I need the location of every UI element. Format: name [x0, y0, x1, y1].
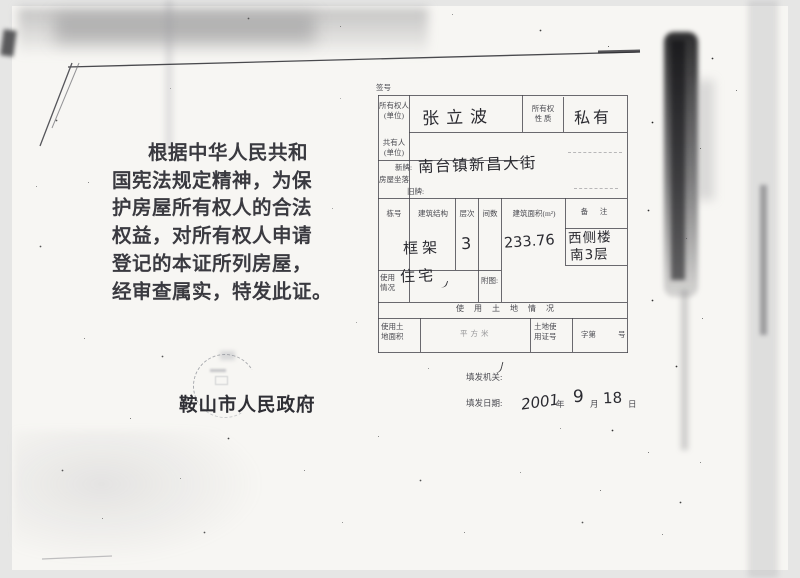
certificate-text-line: 根据中华人民共和 [112, 140, 332, 168]
usage-label-line1: 使用 [380, 273, 395, 283]
location-label: 房屋坐落 [379, 175, 409, 185]
co-owner-label-line1: 共有人 [379, 138, 409, 148]
col-remark: 备 注 [568, 207, 625, 217]
scanned-certificate-page: 根据中华人民共和 国宪法规定精神，为保 护房屋所有权人的合法 权益，对所有权人申… [0, 0, 800, 578]
address-value: 南台镇新昌大街 [418, 151, 538, 177]
property-form-table: 签号 [378, 95, 628, 353]
land-area-label-line1: 使用土 [381, 322, 404, 332]
ownership-nature-label: 所有权 性 质 [524, 104, 562, 124]
file-number-label: 签号 [376, 83, 391, 93]
col-floors: 层次 [457, 209, 477, 219]
certificate-text-line: 登记的本证所列房屋， [112, 251, 332, 279]
col-building-no: 栋号 [381, 209, 407, 219]
remark-value-line2: 南3层 [570, 242, 609, 263]
certificate-text-line: 经审查属实，特发此证。 [112, 279, 332, 307]
usage-label-line2: 情况 [380, 283, 395, 293]
issue-month-value: 9 [573, 387, 585, 407]
issuer-name: 鞍山市人民政府 [179, 391, 316, 417]
land-section-title: 使 用 土 地 情 况 [456, 304, 558, 314]
ownership-nature-label-line1: 所有权 [524, 104, 562, 114]
col-area: 建筑面积(m²) [504, 209, 564, 219]
area-value: 233.76 [504, 232, 556, 252]
land-cert-label-line2: 用证号 [534, 332, 557, 342]
land-area-label-line2: 地面积 [381, 332, 404, 342]
owner-label: 所有权人 (单位) [379, 101, 409, 121]
structure-value: 框架 [403, 236, 442, 258]
issue-day-value: 18 [603, 389, 623, 408]
issue-date-label: 填发日期: [466, 398, 502, 409]
floors-value: 3 [461, 234, 472, 253]
seal-smudge [210, 369, 226, 372]
co-owner-label: 共有人 (单位) [379, 138, 409, 158]
seal-smudge [215, 376, 228, 385]
issuing-organ-label: 填发机关: [466, 372, 502, 383]
owner-name-value: 张立波 [422, 102, 495, 129]
owner-label-line1: 所有权人 [379, 101, 409, 111]
month-suffix: 月 [590, 399, 599, 410]
year-suffix: 年 [556, 399, 565, 410]
new-plate-label: 新牌: [395, 163, 412, 173]
old-plate-label: 旧牌: [407, 187, 424, 197]
ownership-nature-value: 私有 [574, 103, 613, 128]
hao-label: 号 [618, 330, 626, 340]
ownership-nature-label-line2: 性 质 [524, 114, 562, 124]
certificate-text-line: 权益，对所有权人申请 [112, 223, 332, 251]
attached-plan-label: 附图: [481, 276, 498, 286]
col-structure: 建筑结构 [412, 209, 454, 219]
certificate-text-line: 护房屋所有权人的合法 [112, 195, 332, 223]
land-cert-label-line1: 土地使 [534, 322, 557, 332]
certificate-text-line: 国宪法规定精神，为保 [112, 168, 332, 196]
co-owner-label-line2: (单位) [379, 148, 409, 158]
zi-di-label: 字第 [581, 330, 596, 340]
seal-smudge [220, 351, 235, 360]
owner-label-line2: (单位) [379, 111, 409, 121]
usage-value: 住宅 [400, 264, 437, 286]
col-rooms: 间数 [480, 209, 500, 219]
certificate-declaration: 根据中华人民共和 国宪法规定精神，为保 护房屋所有权人的合法 权益，对所有权人申… [112, 140, 332, 306]
handwriting-stroke [440, 279, 448, 289]
day-suffix: 日 [628, 399, 637, 410]
land-unit-label: 平方米 [460, 329, 492, 339]
